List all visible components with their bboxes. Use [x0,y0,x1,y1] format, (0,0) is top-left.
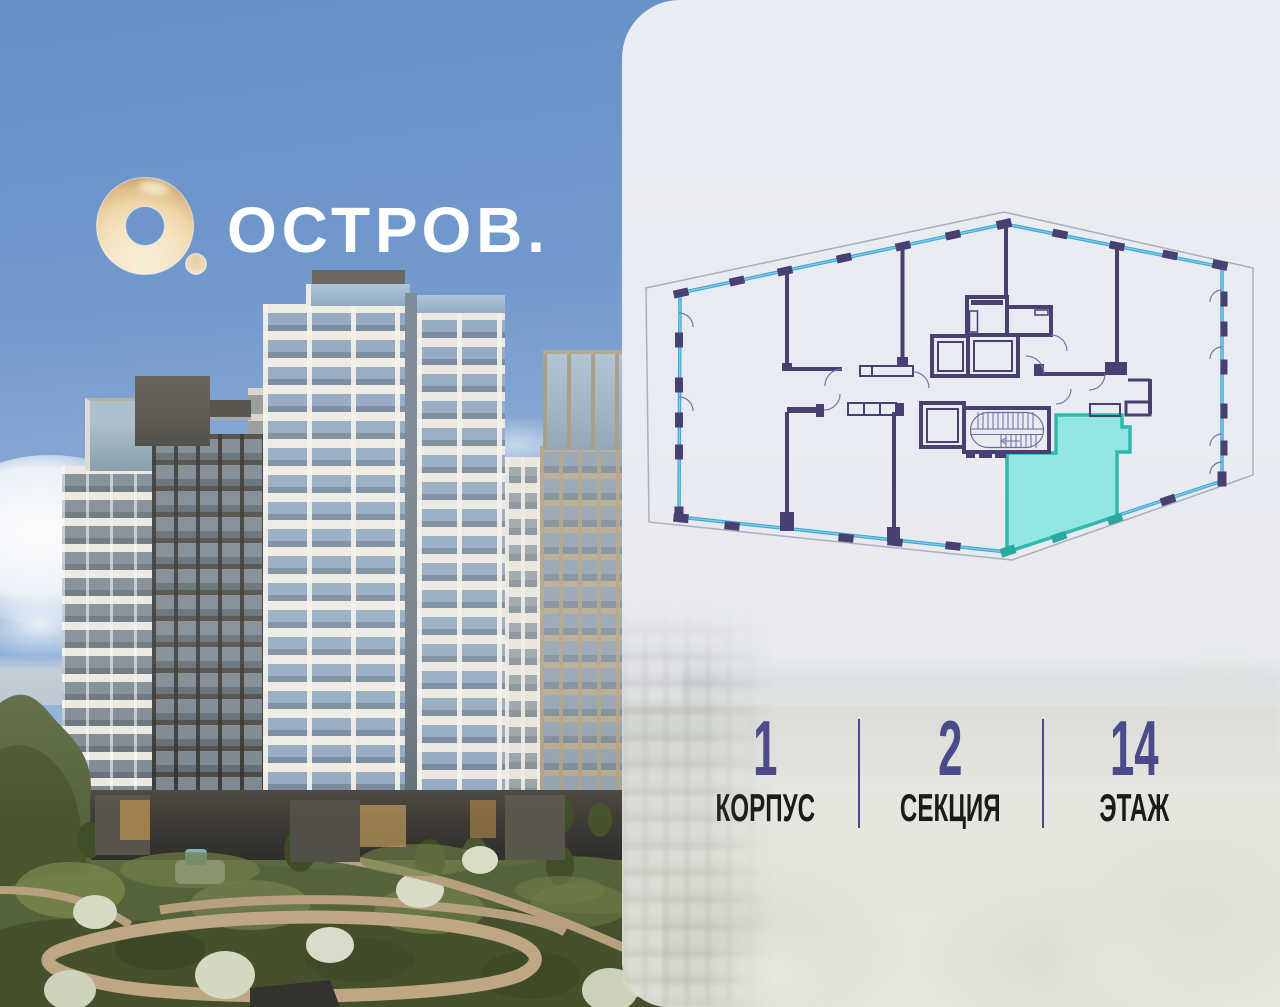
svg-text:ОСТРОВ.: ОСТРОВ. [227,194,550,266]
